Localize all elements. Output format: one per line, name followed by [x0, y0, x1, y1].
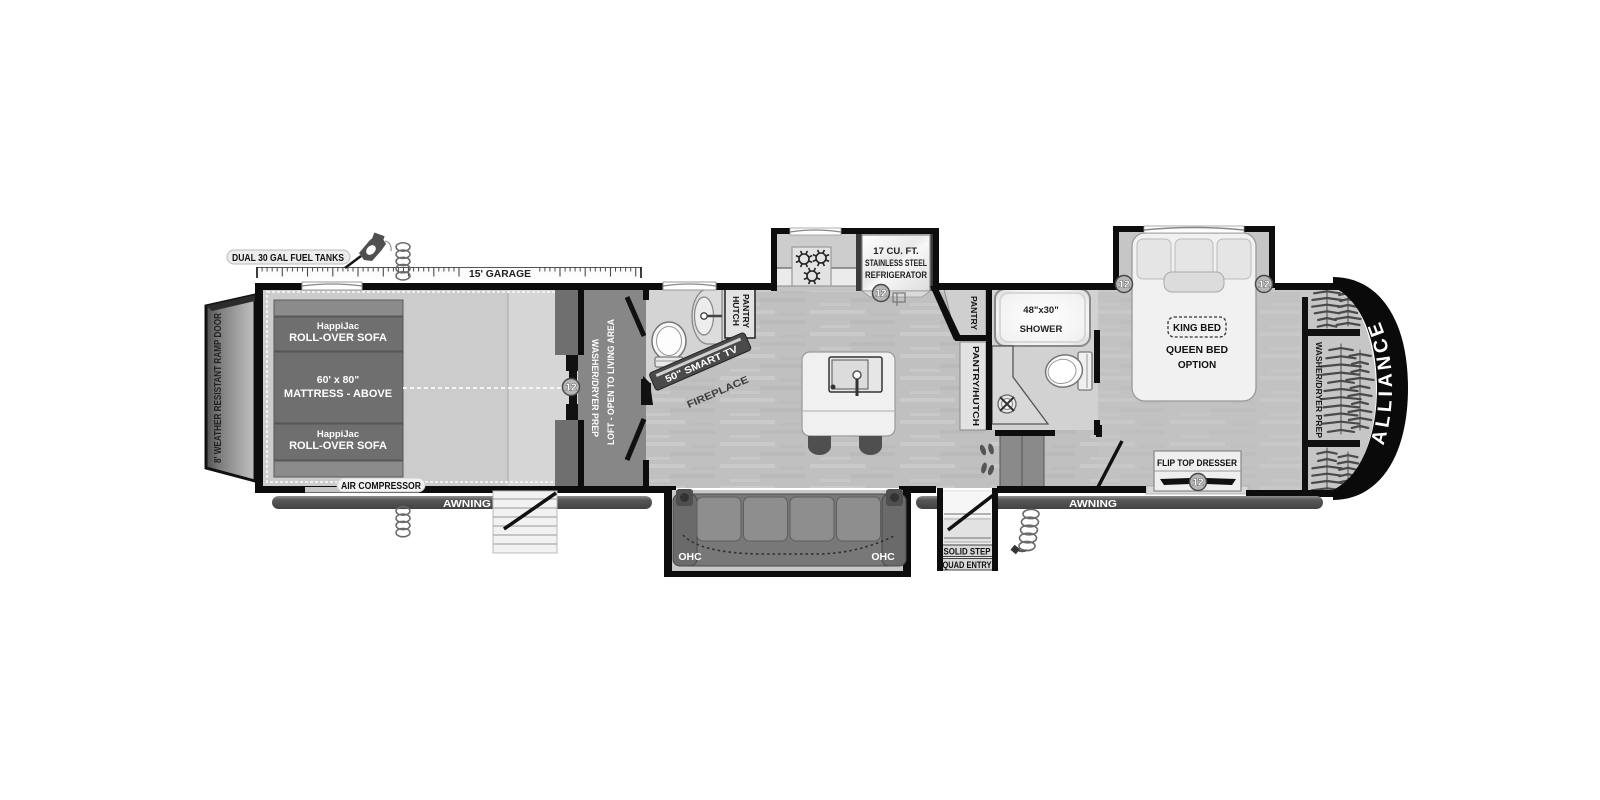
svg-text:HappiJac: HappiJac — [317, 321, 359, 332]
svg-text:KING BED: KING BED — [1173, 323, 1221, 334]
svg-text:SHOWER: SHOWER — [1020, 324, 1063, 335]
svg-text:REFRIGERATOR: REFRIGERATOR — [865, 270, 927, 281]
svg-text:MATTRESS - ABOVE: MATTRESS - ABOVE — [284, 388, 392, 400]
svg-text:OPTION: OPTION — [1178, 360, 1216, 371]
svg-text:12: 12 — [1258, 280, 1270, 291]
svg-text:ROLL-OVER SOFA: ROLL-OVER SOFA — [289, 332, 387, 344]
svg-text:DUAL 30 GAL FUEL TANKS: DUAL 30 GAL FUEL TANKS — [232, 252, 344, 264]
svg-text:12: 12 — [565, 383, 577, 394]
svg-text:48"x30": 48"x30" — [1023, 305, 1058, 316]
svg-text:17 CU. FT.: 17 CU. FT. — [873, 246, 918, 257]
svg-text:ROLL-OVER SOFA: ROLL-OVER SOFA — [289, 440, 387, 452]
svg-text:15' GARAGE: 15' GARAGE — [469, 268, 531, 280]
svg-text:SOLID STEP: SOLID STEP — [944, 547, 992, 558]
svg-text:OHC: OHC — [871, 551, 895, 563]
svg-text:HUTCH: HUTCH — [731, 296, 741, 326]
svg-text:AIR COMPRESSOR: AIR COMPRESSOR — [341, 480, 421, 492]
svg-text:STAINLESS STEEL: STAINLESS STEEL — [865, 258, 927, 269]
svg-text:LOFT - OPEN TO LIVING AREA: LOFT - OPEN TO LIVING AREA — [606, 319, 617, 445]
svg-text:PANTRY: PANTRY — [969, 296, 979, 330]
svg-text:WASHER/DRYER PREP: WASHER/DRYER PREP — [589, 339, 600, 438]
svg-text:12: 12 — [1192, 478, 1204, 489]
svg-text:12: 12 — [875, 289, 887, 300]
svg-text:PANTRY: PANTRY — [741, 294, 751, 328]
svg-text:FLIP TOP DRESSER: FLIP TOP DRESSER — [1157, 458, 1237, 469]
svg-text:AWNING: AWNING — [443, 498, 491, 510]
svg-text:12: 12 — [1118, 280, 1130, 291]
svg-text:PANTRY/HUTCH: PANTRY/HUTCH — [971, 346, 981, 426]
svg-text:AWNING: AWNING — [1069, 498, 1117, 510]
svg-text:QUAD ENTRY: QUAD ENTRY — [943, 560, 993, 571]
svg-text:60' x 80": 60' x 80" — [317, 374, 360, 386]
svg-text:OHC: OHC — [678, 551, 702, 563]
svg-text:8' WEATHER RESISTANT RAMP DOOR: 8' WEATHER RESISTANT RAMP DOOR — [213, 312, 224, 463]
svg-text:WASHER/DRYER PREP: WASHER/DRYER PREP — [1314, 342, 1324, 438]
svg-text:HappiJac: HappiJac — [317, 429, 359, 440]
svg-text:QUEEN BED: QUEEN BED — [1166, 345, 1228, 356]
